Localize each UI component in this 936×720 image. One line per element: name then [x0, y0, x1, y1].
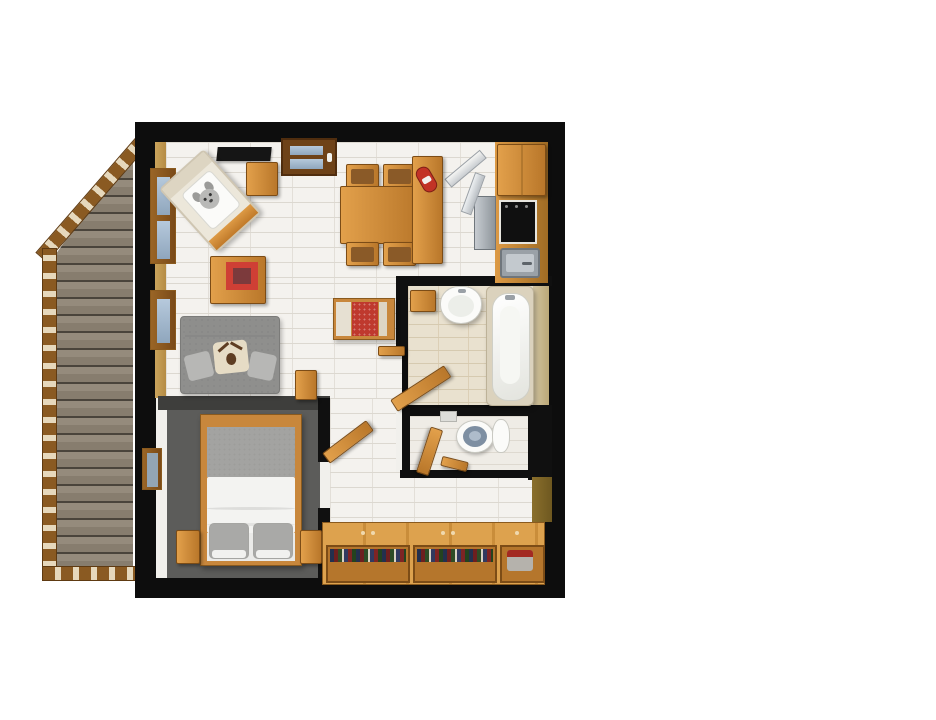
floor-plan-render	[0, 0, 936, 720]
stored-item	[507, 550, 533, 571]
hallway	[0, 0, 936, 720]
bookshelf-box	[413, 545, 497, 583]
bookshelf-box	[326, 545, 410, 583]
storage-cube	[500, 545, 545, 583]
books-row	[330, 549, 406, 562]
books-row	[417, 549, 493, 562]
